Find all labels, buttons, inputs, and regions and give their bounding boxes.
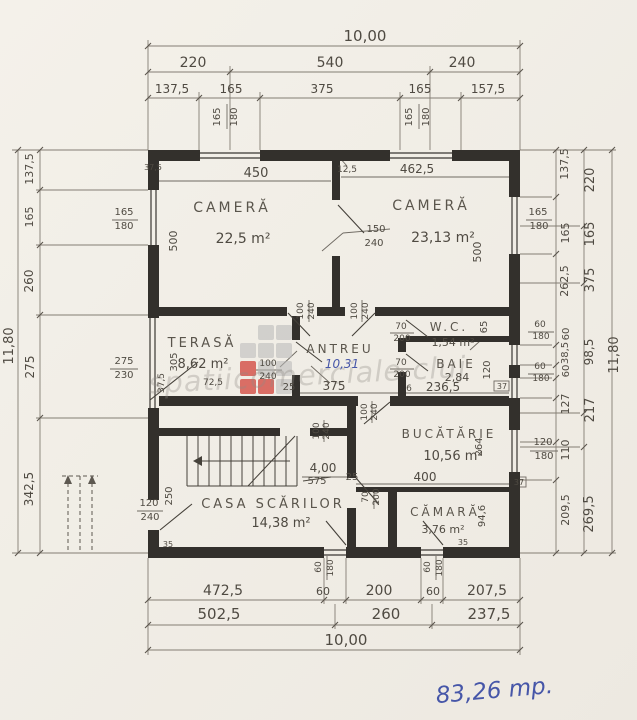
dimension-label: 165 [114,207,133,218]
dimension-label: 60 [423,561,433,573]
dimension-label: 165 [212,107,223,126]
dimension-label: 70 [361,491,371,503]
dimension-label: 60 [316,585,330,598]
dimension-label: 375 [323,379,346,393]
dimension-label: 100 [259,359,276,369]
dimension-label: 100 [296,302,306,319]
dimension-label: 165 [559,223,572,244]
floor-plan-drawing: spatiicomerciale cluj CAMERĂ 22,5 m² CAM… [0,0,637,720]
dimension-label: 37 [514,478,524,487]
dimension-label: 37,5 [144,163,162,172]
dimension-label: 237,5 [468,605,511,623]
room-name-casa-scarilor: CASA SCĂRILOR [201,496,345,512]
dimension-label: 240 [364,238,383,249]
dimension-label: 180 [326,559,336,576]
dimension-label: 157,5 [471,82,505,96]
dimension-label: 137,5 [558,148,571,180]
dimension-label: 275 [23,356,37,379]
dimension-label: 11,80 [2,327,17,364]
dimension-label: 472,5 [203,583,243,599]
dimension-label: 38,5 [560,342,571,364]
dimension-label: 10,00 [325,631,368,649]
room-name-camera-2: CAMERĂ [392,196,470,214]
dimension-label: 180 [114,221,133,232]
dimension-label: 180 [529,221,548,232]
dimension-label: 305 [169,352,180,371]
dimension-label: 137,5 [155,82,189,96]
dimension-label: 240 [370,403,380,420]
dimension-label: 240 [322,422,332,439]
dimension-label: 342,5 [22,472,36,506]
dimension-label: 200 [372,488,382,505]
dimension-label: 137,5 [23,153,36,185]
dimension-label: 240 [449,55,476,71]
dimension-label: 11,80 [607,336,622,373]
dimension-label: 12,5 [337,165,357,175]
dimension-label: 4,00 [310,461,337,475]
room-name-baie: BAIE [436,357,476,371]
dimension-label: 70 [395,358,407,368]
dimension-label: 375 [583,268,598,293]
dimension-label: 500 [167,231,180,252]
dimension-label: 100 [312,422,322,439]
dimension-label: 260 [22,270,36,293]
dimension-label: 37 [497,382,507,391]
dimension-label: 200 [366,583,393,599]
dimension-label: 236,5 [426,380,460,394]
dimension-label: 240 [140,512,159,523]
dimension-label: 240 [259,372,276,382]
dimension-label: 25 [283,382,296,393]
dimension-label: 502,5 [198,605,241,623]
room-area-camera-1: 22,5 m² [216,231,271,247]
dimension-label: 180 [229,107,240,126]
room-name-camera-1: CAMERĂ [193,198,271,216]
dimension-label: 98,5 [582,339,596,366]
dimension-label: 6 [406,384,412,394]
dimension-label: 180 [421,107,432,126]
dimension-label: 230 [114,370,133,381]
dimension-label: 165 [404,107,415,126]
dimension-label: 100 [360,403,370,420]
dimension-label: 60 [534,320,546,330]
dimension-label: 220 [583,168,598,193]
dimension-label: 180 [532,374,549,384]
dimension-label: 462,5 [400,162,434,176]
dimension-label: 35 [163,540,173,549]
dimension-label: 25 [346,472,359,483]
dimension-label: 180 [435,559,445,576]
dimension-label: 375 [311,82,334,96]
dimension-label: 264 [474,437,485,456]
room-name-camara: CĂMARĂ [410,504,480,519]
dimension-label: 70 [395,322,407,332]
dimension-label: 10,00 [344,27,387,45]
dimension-label: 60 [561,328,572,341]
dimension-label: 165 [23,207,36,228]
dimension-label: 450 [244,166,269,181]
dimension-label: 180 [534,451,553,462]
dimension-label: 262,5 [558,265,571,297]
dimension-label: 260 [372,605,401,623]
dimension-label: 72,5 [203,378,223,388]
dimension-label: 165 [409,82,432,96]
room-area-camara: 3,76 m² [421,523,464,536]
dimension-label: 100 [350,302,360,319]
dimension-label: 180 [532,332,549,342]
dimension-label: 207,5 [467,583,507,599]
room-area-antreu: 10,31 [325,357,359,371]
dimension-label: 37,5 [157,373,167,393]
room-name-wc: W.C. [430,320,469,334]
dimension-label: 240 [361,302,371,319]
dimension-label: 60 [314,561,324,573]
dimension-label: 120 [139,498,158,509]
dimension-label: 60 [426,585,440,598]
dimension-label: 200 [393,370,410,380]
dimension-label: 165 [220,82,243,96]
dimension-label: 240 [307,302,317,319]
dimension-label: 127 [559,394,572,415]
dimension-label: 220 [180,55,207,71]
dimension-label: 165 [583,222,598,247]
dimension-label: 60 [561,365,572,378]
dimension-label: 540 [317,55,344,71]
dimension-label: 165 [528,207,547,218]
dimension-label: 275 [114,356,133,367]
scanned-floor-plan: spatiicomerciale cluj CAMERĂ 22,5 m² CAM… [0,0,637,720]
dimension-label: 120 [482,360,493,379]
dimension-label: 250 [164,486,175,505]
dimension-label: 35 [458,538,468,547]
dimension-label: 400 [414,470,437,484]
dimension-label: 217 [583,398,598,423]
dimension-label: 120 [533,437,552,448]
dimension-label: 94,6 [477,505,488,527]
dimension-label: 110 [559,440,572,461]
dimension-label: 209,5 [559,494,572,526]
room-name-antreu: ANTREU [306,342,373,356]
dimension-label: 575 [307,476,326,487]
room-area-camera-2: 23,13 m² [411,230,475,246]
room-area-casa-scarilor: 14,38 m² [251,516,310,531]
dimension-label: 500 [471,242,484,263]
dimension-label: 65 [479,321,490,334]
dimension-label: 60 [534,362,546,372]
dimension-label: 200 [393,334,410,344]
room-area-wc: 1,54 m² [431,336,474,349]
room-area-terasa: 8,62 m² [178,357,229,372]
dimension-label: 269,5 [582,495,597,532]
room-name-terasa: TERASĂ [167,335,237,351]
dimension-label: 150 [366,224,385,235]
